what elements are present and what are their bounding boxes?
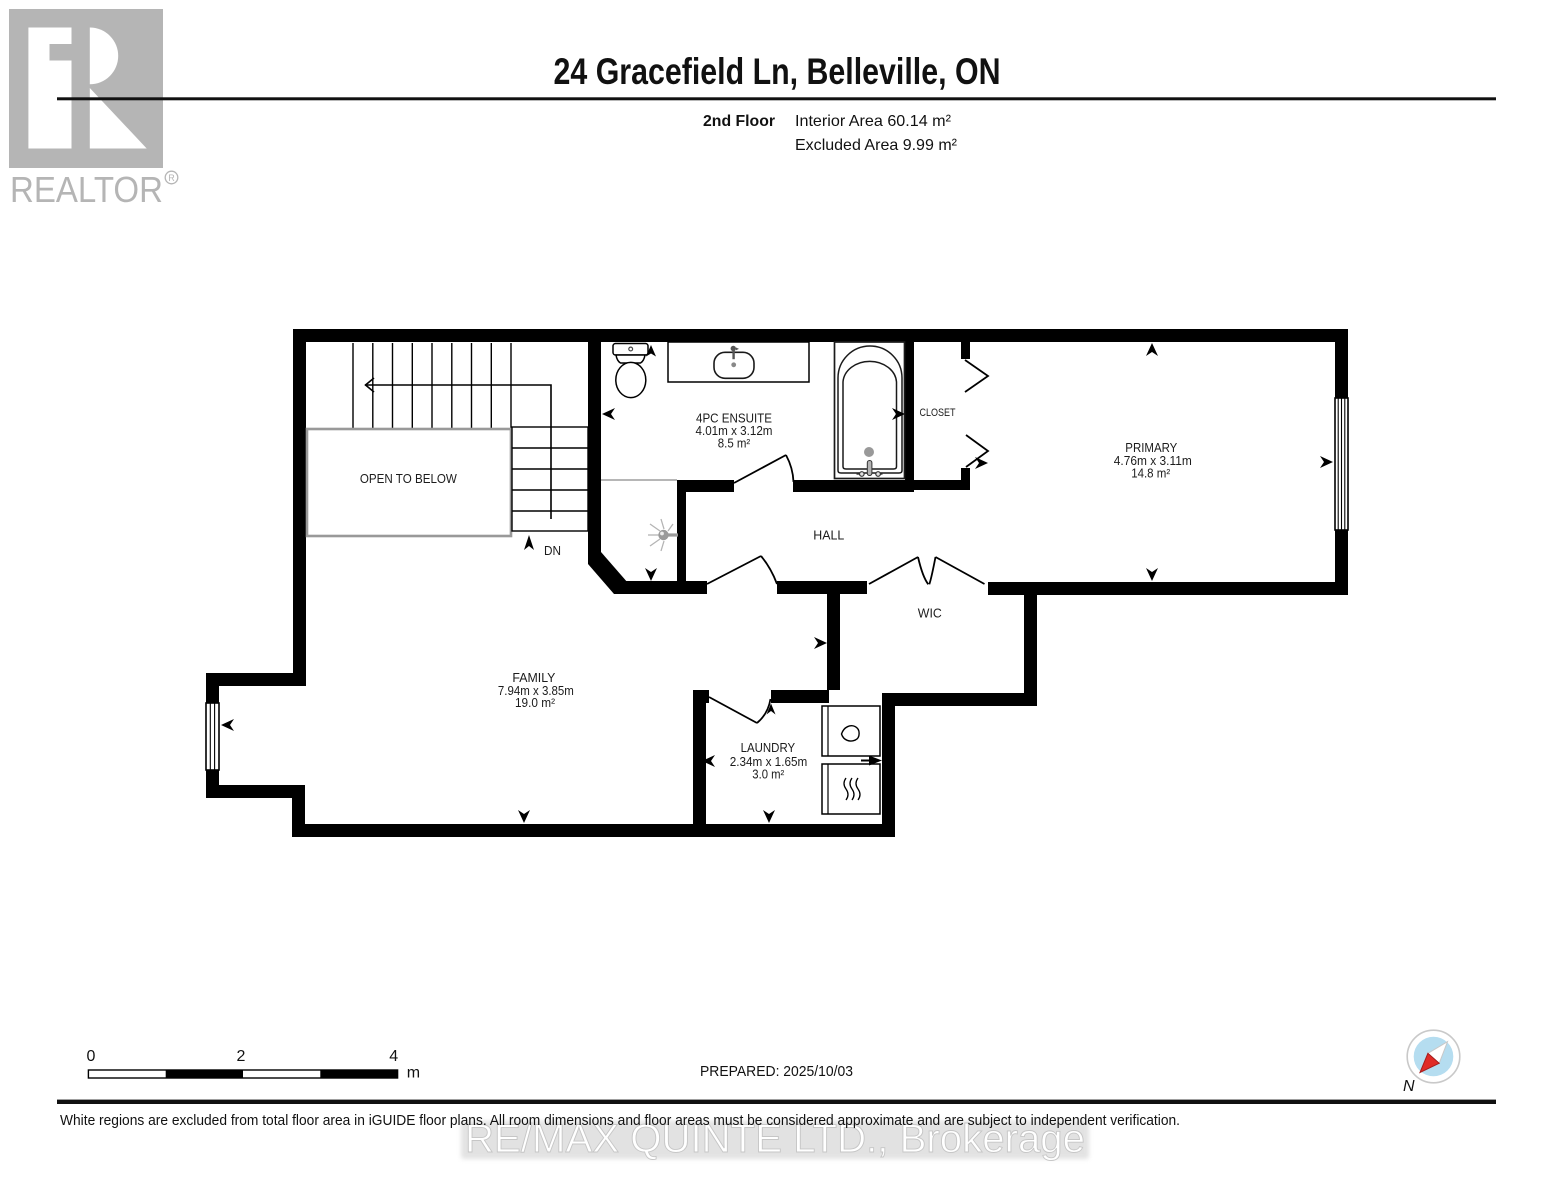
svg-text:REALTOR: REALTOR — [10, 169, 163, 210]
svg-text:WIC: WIC — [918, 605, 942, 620]
svg-text:Interior Area 60.14 m²: Interior Area 60.14 m² — [795, 113, 952, 130]
svg-text:CLOSET: CLOSET — [920, 407, 956, 419]
svg-text:N: N — [1403, 1078, 1415, 1095]
svg-text:14.8 m²: 14.8 m² — [1131, 466, 1171, 481]
svg-text:m: m — [407, 1065, 420, 1082]
svg-text:R: R — [168, 173, 175, 183]
svg-text:24 Gracefield Ln, Belleville,: 24 Gracefield Ln, Belleville, ON — [554, 51, 1001, 92]
svg-text:White regions are excluded fro: White regions are excluded from total fl… — [60, 1113, 1180, 1129]
svg-text:LAUNDRY: LAUNDRY — [741, 740, 796, 755]
svg-text:DN: DN — [544, 543, 561, 558]
svg-text:3.0 m²: 3.0 m² — [752, 766, 785, 781]
svg-text:2: 2 — [237, 1048, 246, 1065]
svg-text:PREPARED: 2025/10/03: PREPARED: 2025/10/03 — [700, 1063, 853, 1080]
svg-text:19.0 m²: 19.0 m² — [515, 695, 556, 710]
svg-text:8.5 m²: 8.5 m² — [718, 436, 751, 451]
svg-text:HALL: HALL — [813, 528, 844, 543]
svg-text:2nd Floor: 2nd Floor — [703, 113, 775, 130]
svg-text:Excluded Area 9.99 m²: Excluded Area 9.99 m² — [795, 137, 958, 154]
svg-text:0: 0 — [86, 1048, 95, 1065]
svg-text:4: 4 — [389, 1048, 398, 1065]
svg-text:OPEN TO BELOW: OPEN TO BELOW — [360, 471, 458, 486]
